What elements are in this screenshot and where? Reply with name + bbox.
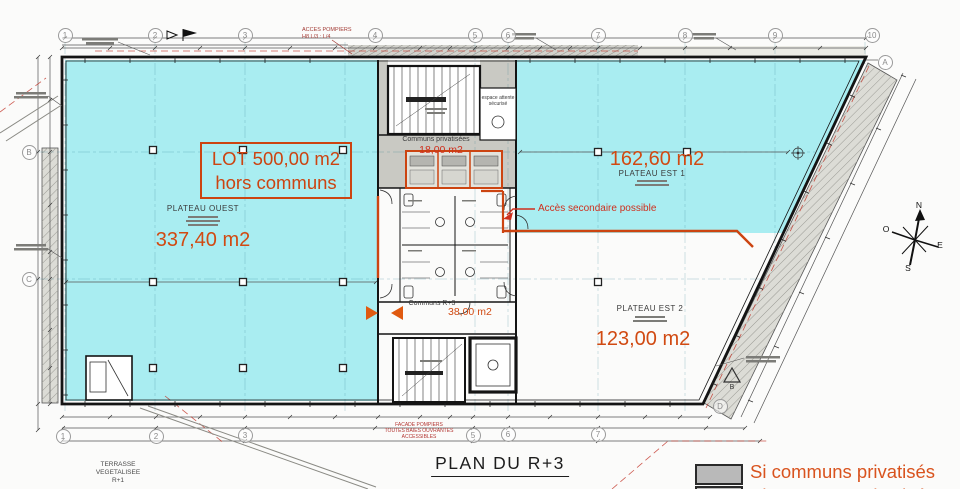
section-marker-b-label: B [730, 384, 735, 391]
grid-bubble-top-6: 6 [501, 28, 516, 43]
compass-e: E [937, 240, 943, 250]
lockers-block [406, 151, 502, 188]
espace-attente-label: espace attente sécurisé [482, 96, 515, 107]
orange-arrow-left-icon [391, 306, 403, 320]
floorplan-linework [0, 0, 960, 489]
compass-n: N [916, 200, 922, 210]
grid-bubble-bottom-1: 1 [56, 429, 71, 444]
acces-pompiers-note: ACCES POMPIERS H8 L/3 : L/4 [302, 27, 352, 40]
terrasse-note: TERRASSE VEGETALISEE R+1 [96, 461, 140, 485]
grid-bubble-bottom-5: 5 [466, 428, 481, 443]
grid-bubble-bottom-6: 6 [501, 427, 516, 442]
floorplan-canvas: LOT 500,00 m2 hors communs PLATEAU OUEST… [0, 0, 960, 489]
grid-bubble-bottom-2: 2 [149, 429, 164, 444]
communs-privatises-label: Communs privatisées [402, 136, 469, 143]
grid-bubble-bottom-7: 7 [591, 427, 606, 442]
grid-bubble-left-c: C [22, 272, 37, 287]
acces-secondaire-note: Accès secondaire possible [538, 203, 656, 214]
grid-bubble-right-a: A [878, 55, 893, 70]
lot-annotation-box: LOT 500,00 m2 hors communs [200, 142, 352, 199]
legend-label-2-partial: Si communs privatisés [750, 485, 935, 489]
grid-bubble-top-9: 9 [768, 28, 783, 43]
grid-bubble-top-4: 4 [368, 28, 383, 43]
communs-r3-area: 38,00 m2 [448, 306, 492, 318]
north-compass-icon [892, 209, 938, 265]
grid-bubble-top-10: 10 [865, 28, 880, 43]
lot-area-value: LOT 500,00 m2 [212, 147, 340, 171]
grid-bubble-left-b: B [22, 145, 37, 160]
grid-bubble-top-8: 8 [678, 28, 693, 43]
grid-bubble-top-1: 1 [58, 28, 73, 43]
plateau-est1-area: 162,60 m2 [610, 148, 705, 171]
compass-o: O [883, 224, 890, 234]
plateau-ouest-label: PLATEAU OUEST [167, 204, 239, 213]
legend-label: Si communs privatisés [750, 461, 935, 483]
grid-bubble-top-5: 5 [468, 28, 483, 43]
elevator-shaft [470, 338, 516, 392]
grid-bubble-bottom-3: 3 [238, 428, 253, 443]
legend-swatch [695, 464, 743, 485]
facade-pompiers-note: FACADE POMPIERS TOUTES BAIES OUVRANTES A… [385, 422, 454, 440]
plan-title: PLAN DU R+3 [431, 453, 569, 477]
plateau-est2-label: PLATEAU EST 2 [617, 304, 684, 313]
grid-bubble-top-3: 3 [238, 28, 253, 43]
lot-area-note: hors communs [215, 171, 336, 195]
grid-bubble-top-7: 7 [591, 28, 606, 43]
plateau-ouest-area: 337,40 m2 [156, 229, 251, 252]
grid-bubble-right-d: D [713, 399, 728, 414]
flag-marker-icon [167, 29, 197, 41]
plateau-est2-area: 123,00 m2 [596, 328, 691, 351]
stairwell-south [393, 338, 465, 402]
grid-bubble-top-2: 2 [148, 28, 163, 43]
communs-privatises-area: 18,00 m2 [419, 144, 463, 156]
compass-s: S [905, 263, 911, 273]
plateau-est1-label: PLATEAU EST 1 [619, 169, 686, 178]
